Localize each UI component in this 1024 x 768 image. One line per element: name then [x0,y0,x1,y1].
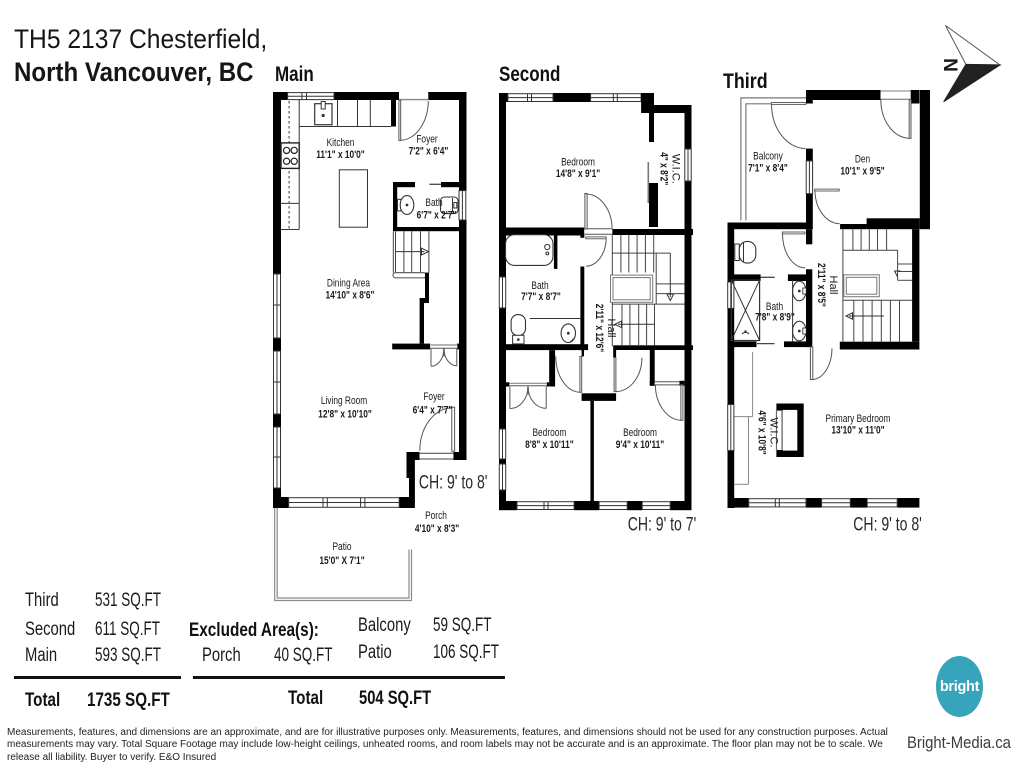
svg-text:15'0" X 7'1": 15'0" X 7'1" [319,555,364,567]
svg-text:2'11" x 8'5": 2'11" x 8'5" [815,263,827,307]
svg-text:4" x 8'2": 4" x 8'2" [657,152,669,185]
svg-text:Primary Bedroom: Primary Bedroom [826,413,891,425]
svg-text:9'4" x 10'11": 9'4" x 10'11" [616,439,665,451]
svg-text:Balcony: Balcony [753,150,783,162]
svg-text:Living Room: Living Room [321,395,367,407]
svg-text:Bedroom: Bedroom [532,427,566,439]
svg-text:13'10" x 11'0": 13'10" x 11'0" [831,424,884,436]
svg-text:Hall: Hall [605,319,617,338]
svg-text:7'1" x 8'4": 7'1" x 8'4" [748,163,788,175]
svg-text:Kitchen: Kitchen [327,137,355,149]
svg-text:W.I.C.: W.I.C. [670,154,682,184]
svg-text:CH: 9' to 8': CH: 9' to 8' [419,471,488,493]
svg-text:7'7" x 8'7": 7'7" x 8'7" [521,291,561,303]
svg-text:W.I.C.: W.I.C. [768,418,780,448]
svg-text:Foyer: Foyer [416,133,438,145]
svg-text:Porch: Porch [425,510,447,522]
svg-text:Bedroom: Bedroom [561,156,595,168]
svg-text:Bedroom: Bedroom [623,427,657,439]
svg-text:12'8" x 10'10": 12'8" x 10'10" [318,408,372,420]
svg-text:Hall: Hall [827,276,839,295]
svg-text:14'10" x 8'6": 14'10" x 8'6" [325,290,374,302]
svg-text:6'4" x 7'7": 6'4" x 7'7" [413,404,453,416]
svg-text:Bath: Bath [425,197,442,209]
svg-text:CH: 9' to 8': CH: 9' to 8' [853,513,922,535]
svg-text:7'2" x 6'4": 7'2" x 6'4" [409,145,449,157]
svg-text:4'6" x 10'8": 4'6" x 10'8" [755,410,767,454]
svg-text:2'11" x 12'6": 2'11" x 12'6" [593,304,605,353]
svg-text:11'1" x 10'0": 11'1" x 10'0" [316,149,365,161]
svg-text:7'8" x 8'9": 7'8" x 8'9" [755,311,795,323]
svg-text:6'7" x 2'7": 6'7" x 2'7" [417,210,457,222]
svg-text:8'8" x 10'11": 8'8" x 10'11" [525,439,574,451]
svg-text:Foyer: Foyer [423,391,445,403]
svg-text:Patio: Patio [332,541,352,553]
svg-text:14'8" x 9'1": 14'8" x 9'1" [556,168,600,180]
svg-text:10'1" x 9'5": 10'1" x 9'5" [840,166,884,178]
svg-text:4'10" x 8'3": 4'10" x 8'3" [415,523,459,535]
svg-text:CH: 9' to 7': CH: 9' to 7' [628,513,697,535]
svg-text:N: N [939,58,960,72]
svg-text:Dining Area: Dining Area [327,277,371,289]
svg-text:Den: Den [855,153,870,165]
